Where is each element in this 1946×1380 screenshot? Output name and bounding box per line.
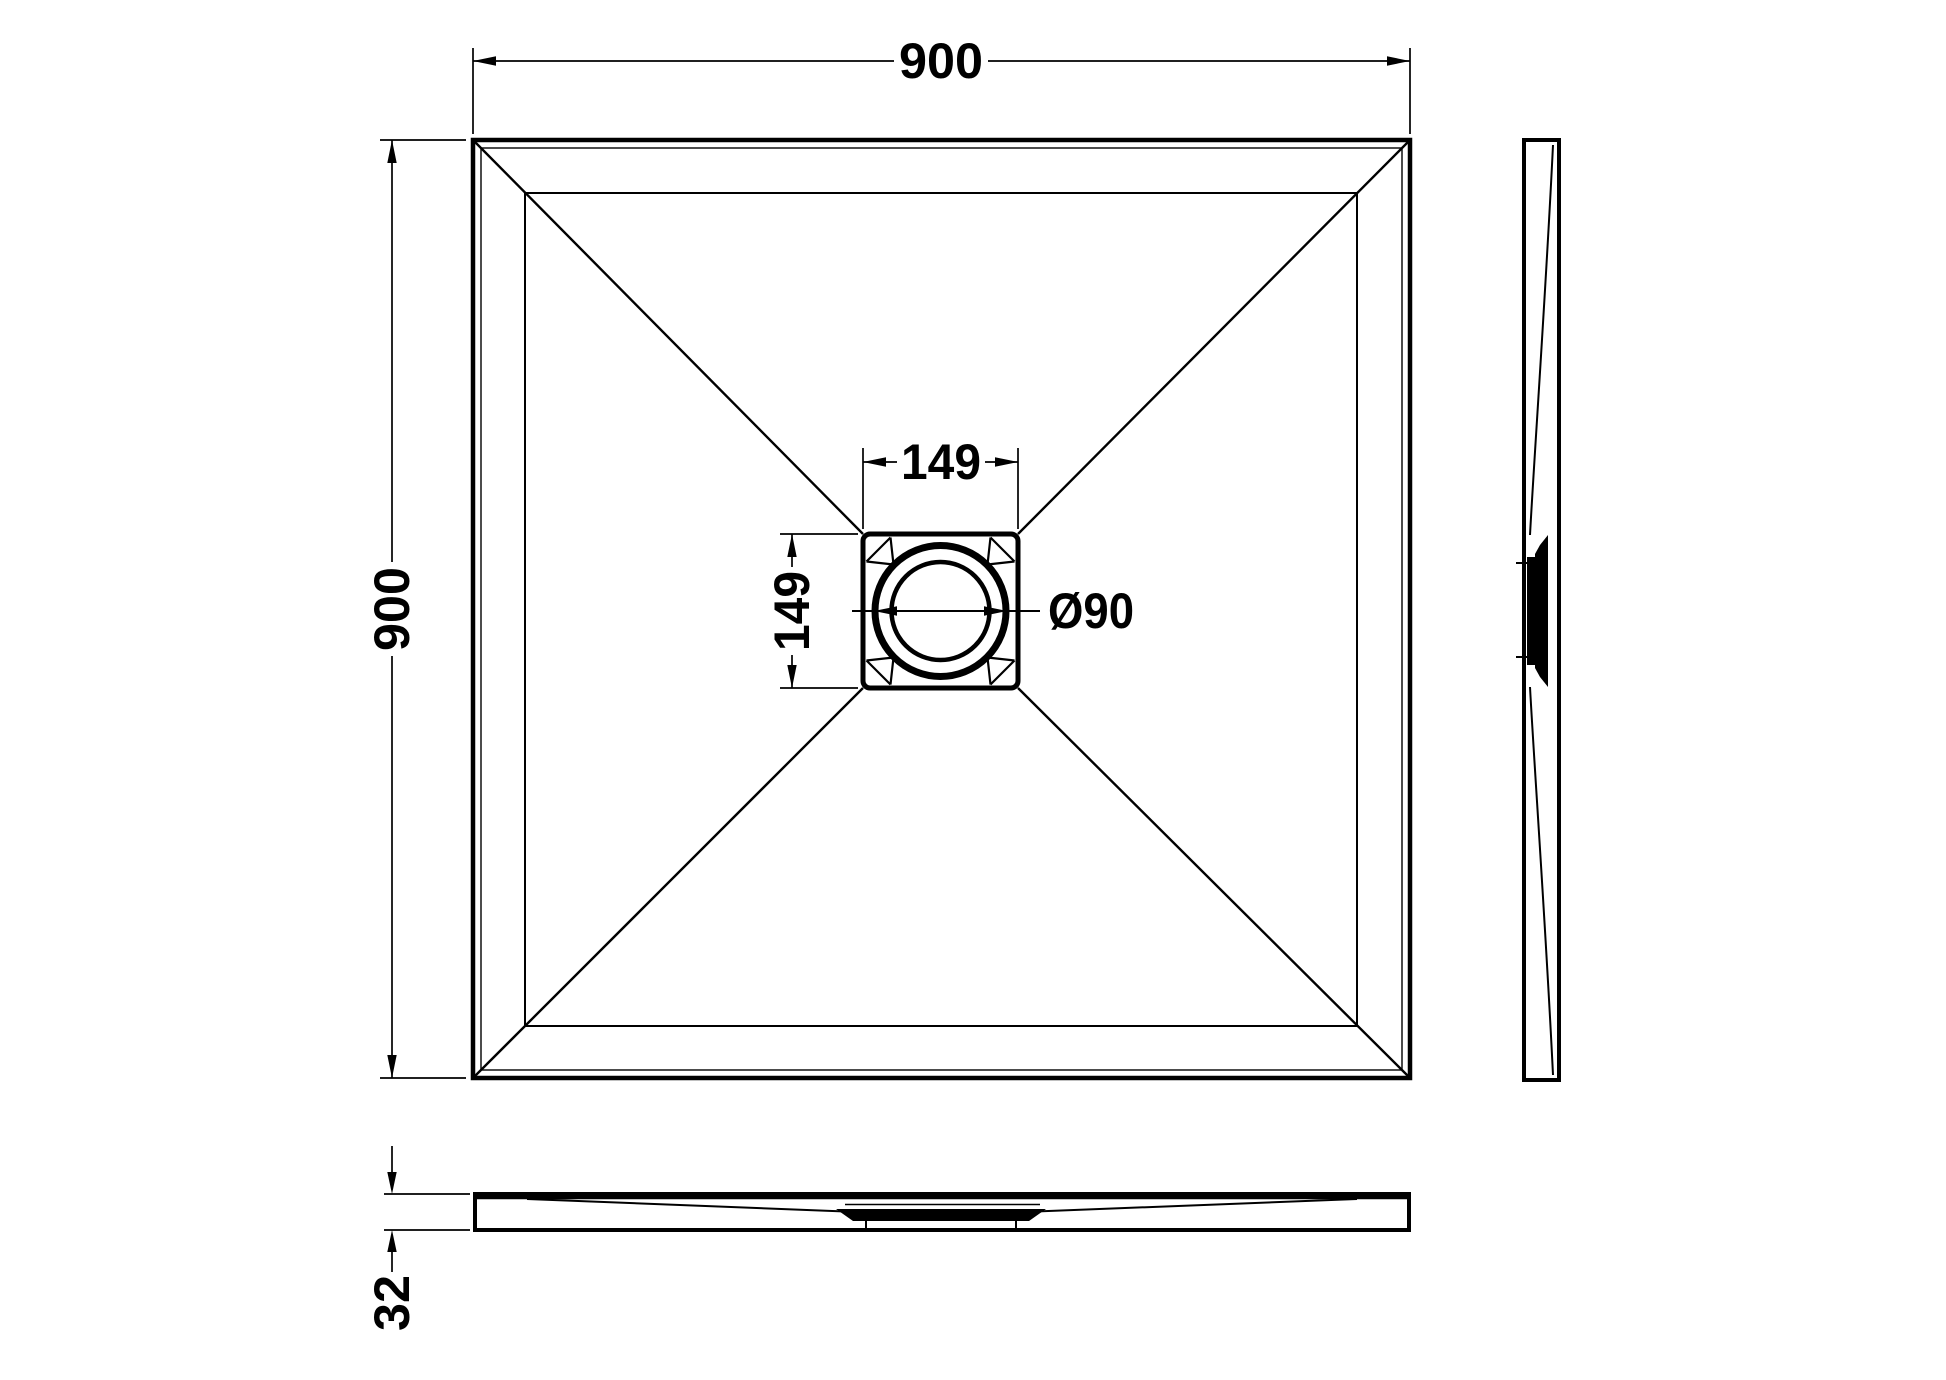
dim-label-waste-diameter: Ø90: [1048, 583, 1134, 639]
dim-label-drain-width: 149: [901, 434, 981, 490]
shower-tray-drawing: 900 900 149: [0, 0, 1946, 1375]
side-drain-body: [1535, 535, 1548, 687]
dim-overall-depth: 900: [364, 140, 466, 1078]
top-view: [473, 140, 1410, 1078]
dim-label-overall-depth: 900: [364, 567, 420, 651]
dim-label-drain-height: 149: [764, 571, 820, 651]
arrowhead-down: [387, 1055, 396, 1078]
front-drain-body: [836, 1209, 1046, 1221]
arrowhead-up: [387, 140, 396, 163]
front-profile-view: [475, 1194, 1409, 1230]
dim-label-thickness: 32: [364, 1275, 420, 1331]
dim-label-overall-width: 900: [899, 33, 983, 89]
dim-overall-width: 900: [473, 33, 1410, 134]
arrowhead-down: [387, 1172, 396, 1194]
dim-thickness: 32: [364, 1146, 470, 1331]
technical-drawing-canvas: 900 900 149: [0, 0, 1946, 1375]
arrowhead-right: [1387, 56, 1410, 65]
side-drain-flange: [1527, 557, 1536, 665]
arrowhead-up: [387, 1230, 396, 1252]
right-side-view: [1516, 140, 1559, 1080]
arrowhead-left: [473, 56, 496, 65]
